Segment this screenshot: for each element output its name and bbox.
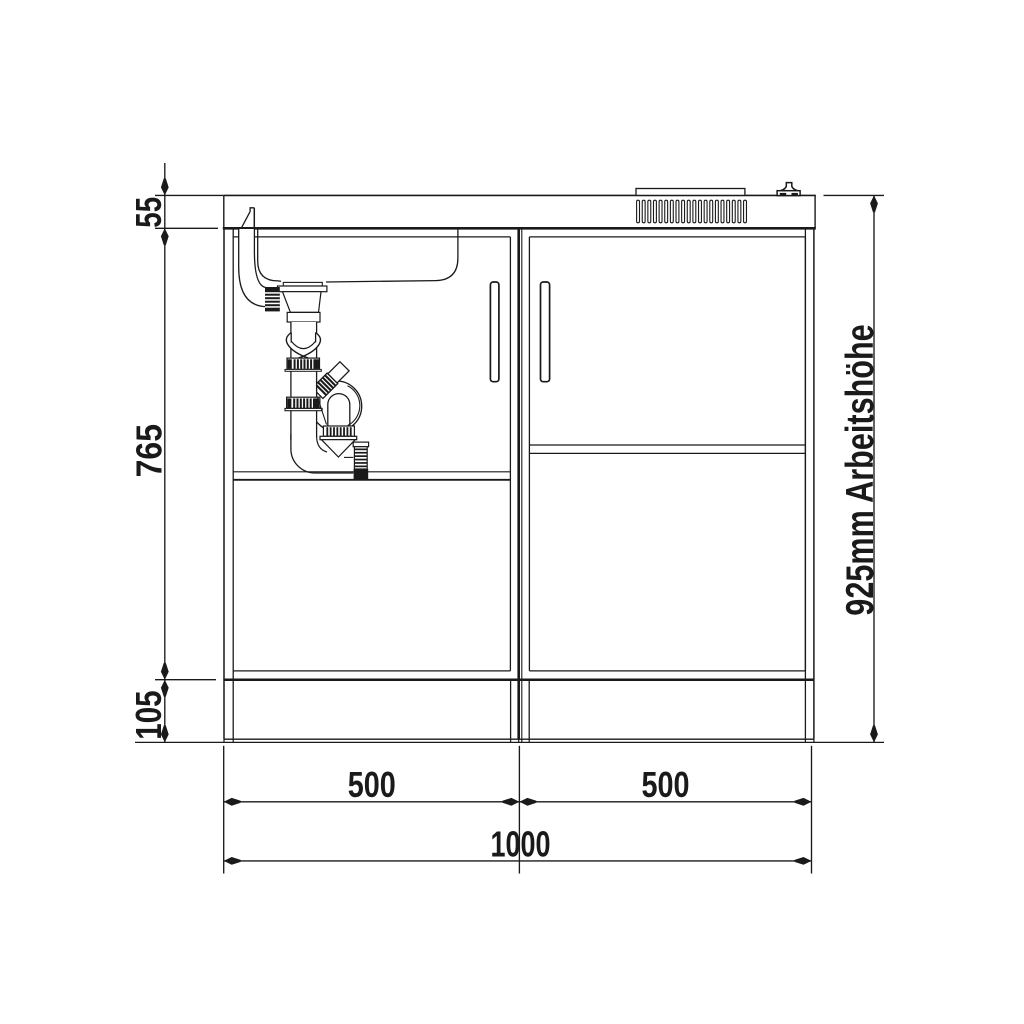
svg-text:500: 500	[348, 764, 396, 805]
svg-text:1000: 1000	[490, 824, 550, 865]
svg-text:500: 500	[641, 764, 689, 805]
svg-text:925mm Arbeitshöhe: 925mm Arbeitshöhe	[839, 324, 882, 615]
svg-text:765: 765	[130, 424, 170, 477]
svg-text:55: 55	[129, 197, 169, 228]
svg-text:105: 105	[128, 690, 168, 739]
